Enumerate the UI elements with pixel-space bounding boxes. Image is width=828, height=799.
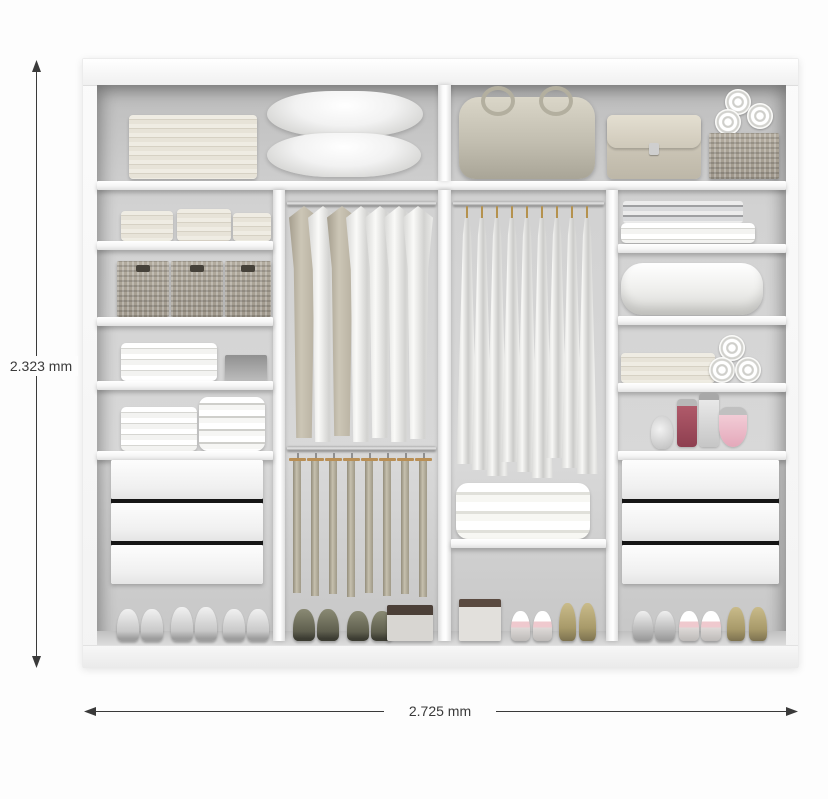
drawer (622, 460, 779, 499)
hanging-trousers (415, 453, 432, 597)
rolled-towel (709, 357, 735, 383)
hanging-trousers (343, 453, 360, 597)
top-folded-towels-stack (129, 115, 257, 179)
height-dimension-label: 2.323 mm (4, 356, 78, 376)
wicker-basket (117, 261, 169, 317)
top-center-divider (438, 85, 451, 181)
perfume-bottle-pink (719, 407, 747, 447)
dimension-arrow-right (786, 707, 798, 716)
linen-stack (121, 343, 217, 381)
hanging-rod-shirts (287, 201, 436, 206)
towel-stack (233, 213, 271, 241)
hanging-trousers (307, 453, 324, 596)
pillow-bottom (267, 133, 421, 177)
drawer-countertop (618, 451, 786, 460)
sneaker (223, 609, 245, 641)
wardrobe-top-panel (83, 59, 798, 86)
sneaker (141, 609, 163, 641)
shelf (97, 381, 273, 390)
sneaker (317, 609, 339, 641)
drawer (622, 503, 779, 542)
storage-box (387, 605, 433, 641)
folded-garments-stack (199, 397, 265, 451)
handbag (607, 115, 701, 179)
hanging-trousers (325, 453, 342, 594)
left-drawer-unit (111, 460, 263, 584)
shelf (618, 383, 786, 392)
sandal (749, 607, 767, 641)
heeled-shoe (559, 603, 576, 641)
shelf (618, 316, 786, 325)
towel-stack (121, 211, 173, 241)
top-shelf (97, 181, 786, 190)
drawer (111, 460, 263, 499)
handbag-clasp (649, 143, 659, 155)
wicker-basket (171, 261, 223, 317)
heeled-shoe (579, 603, 596, 641)
divider-center (438, 190, 451, 641)
perfume-bottle-rose (677, 399, 697, 447)
shelf (97, 317, 273, 326)
shelf (451, 539, 606, 548)
perfume-bottle-silver (651, 416, 673, 449)
folded-duvet (621, 263, 763, 315)
ballet-flat (533, 611, 552, 641)
sneaker (247, 609, 269, 641)
storage-box (459, 599, 501, 641)
sandal (727, 607, 745, 641)
drawer-countertop (97, 451, 273, 460)
right-drawer-unit (622, 460, 779, 584)
rolled-towel (715, 109, 741, 135)
wardrobe-plinth (83, 645, 798, 668)
sneaker (293, 609, 315, 641)
sneaker (347, 611, 369, 641)
perfume-bottle-tall (699, 393, 719, 447)
hanging-trousers (397, 453, 414, 594)
wardrobe-interior (97, 85, 786, 645)
hanging-trousers (361, 453, 378, 593)
hanging-rod-trousers (287, 446, 436, 451)
rolled-towel (747, 103, 773, 129)
divider-right (606, 190, 618, 641)
hanging-dress (575, 206, 599, 474)
divider-left (273, 190, 285, 641)
folded-blanket (456, 483, 590, 539)
dimension-arrow-down (32, 656, 41, 668)
basket-handle-slot (136, 265, 150, 272)
ballet-flat (679, 611, 699, 641)
basket-handle-slot (190, 265, 204, 272)
shelf (618, 244, 786, 253)
folded-garments-stack (121, 407, 197, 451)
wicker-box (709, 133, 779, 179)
basket-handle-slot (241, 265, 255, 272)
shelf (97, 241, 273, 250)
pump-shoe (655, 611, 675, 641)
folded-sheet (621, 223, 755, 243)
folded-sheets-stack (623, 201, 743, 223)
width-dimension-label: 2.725 mm (384, 701, 496, 721)
sneaker (195, 607, 217, 641)
sneaker (117, 609, 139, 641)
rolled-towel (735, 357, 761, 383)
pump-shoe (633, 611, 653, 641)
drawer (111, 503, 263, 542)
hanging-trousers (289, 453, 306, 593)
drawer (622, 545, 779, 584)
ballet-flat (701, 611, 721, 641)
wicker-basket (225, 261, 271, 317)
storage-box (225, 355, 267, 381)
towel-stack (621, 353, 715, 383)
wardrobe-cabinet (82, 58, 799, 668)
sneaker (171, 607, 193, 641)
pillow-top (267, 91, 423, 137)
wardrobe-dimension-diagram: { "annotations": { "height_label": "2.32… (0, 0, 828, 799)
hanging-trousers (379, 453, 396, 596)
drawer (111, 545, 263, 584)
towel-stack (177, 209, 231, 241)
ballet-flat (511, 611, 530, 641)
travel-bag (459, 97, 595, 179)
